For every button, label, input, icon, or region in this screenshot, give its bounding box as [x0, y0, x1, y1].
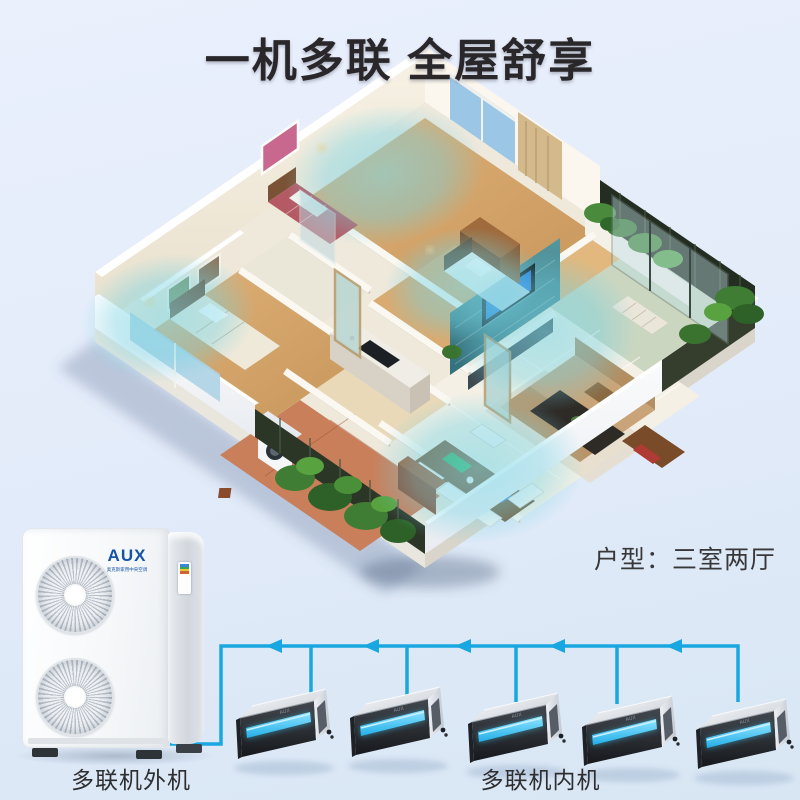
poster: AUX [0, 0, 800, 800]
indoor-unit-2 [348, 687, 448, 773]
page-title: 一机多联 全屋舒享 [0, 24, 800, 89]
aux-logo-subtitle: 奥克斯家用中央空调 [92, 566, 162, 572]
outdoor-unit-foot [176, 744, 202, 753]
aux-logo: AUX 奥克斯家用中央空调 [88, 546, 166, 573]
indoor-unit-5 [694, 699, 794, 785]
outdoor-unit: AUX 奥克斯家用中央空调 [18, 522, 204, 762]
indoor-units-label: 多联机内机 [438, 761, 643, 795]
floorplan-illustration [58, 46, 764, 594]
energy-label [178, 562, 191, 594]
indoor-unit-1 [234, 689, 334, 775]
outdoor-unit-label: 多联机外机 [36, 761, 226, 795]
floorplan-caption: 户型：三室两厅 [594, 540, 776, 576]
aux-logo-text: AUX [88, 546, 166, 566]
outdoor-unit-base-rail [28, 738, 166, 744]
outdoor-unit-foot [136, 750, 162, 759]
fan-grille-bottom [36, 658, 114, 736]
outdoor-unit-foot [32, 748, 58, 757]
